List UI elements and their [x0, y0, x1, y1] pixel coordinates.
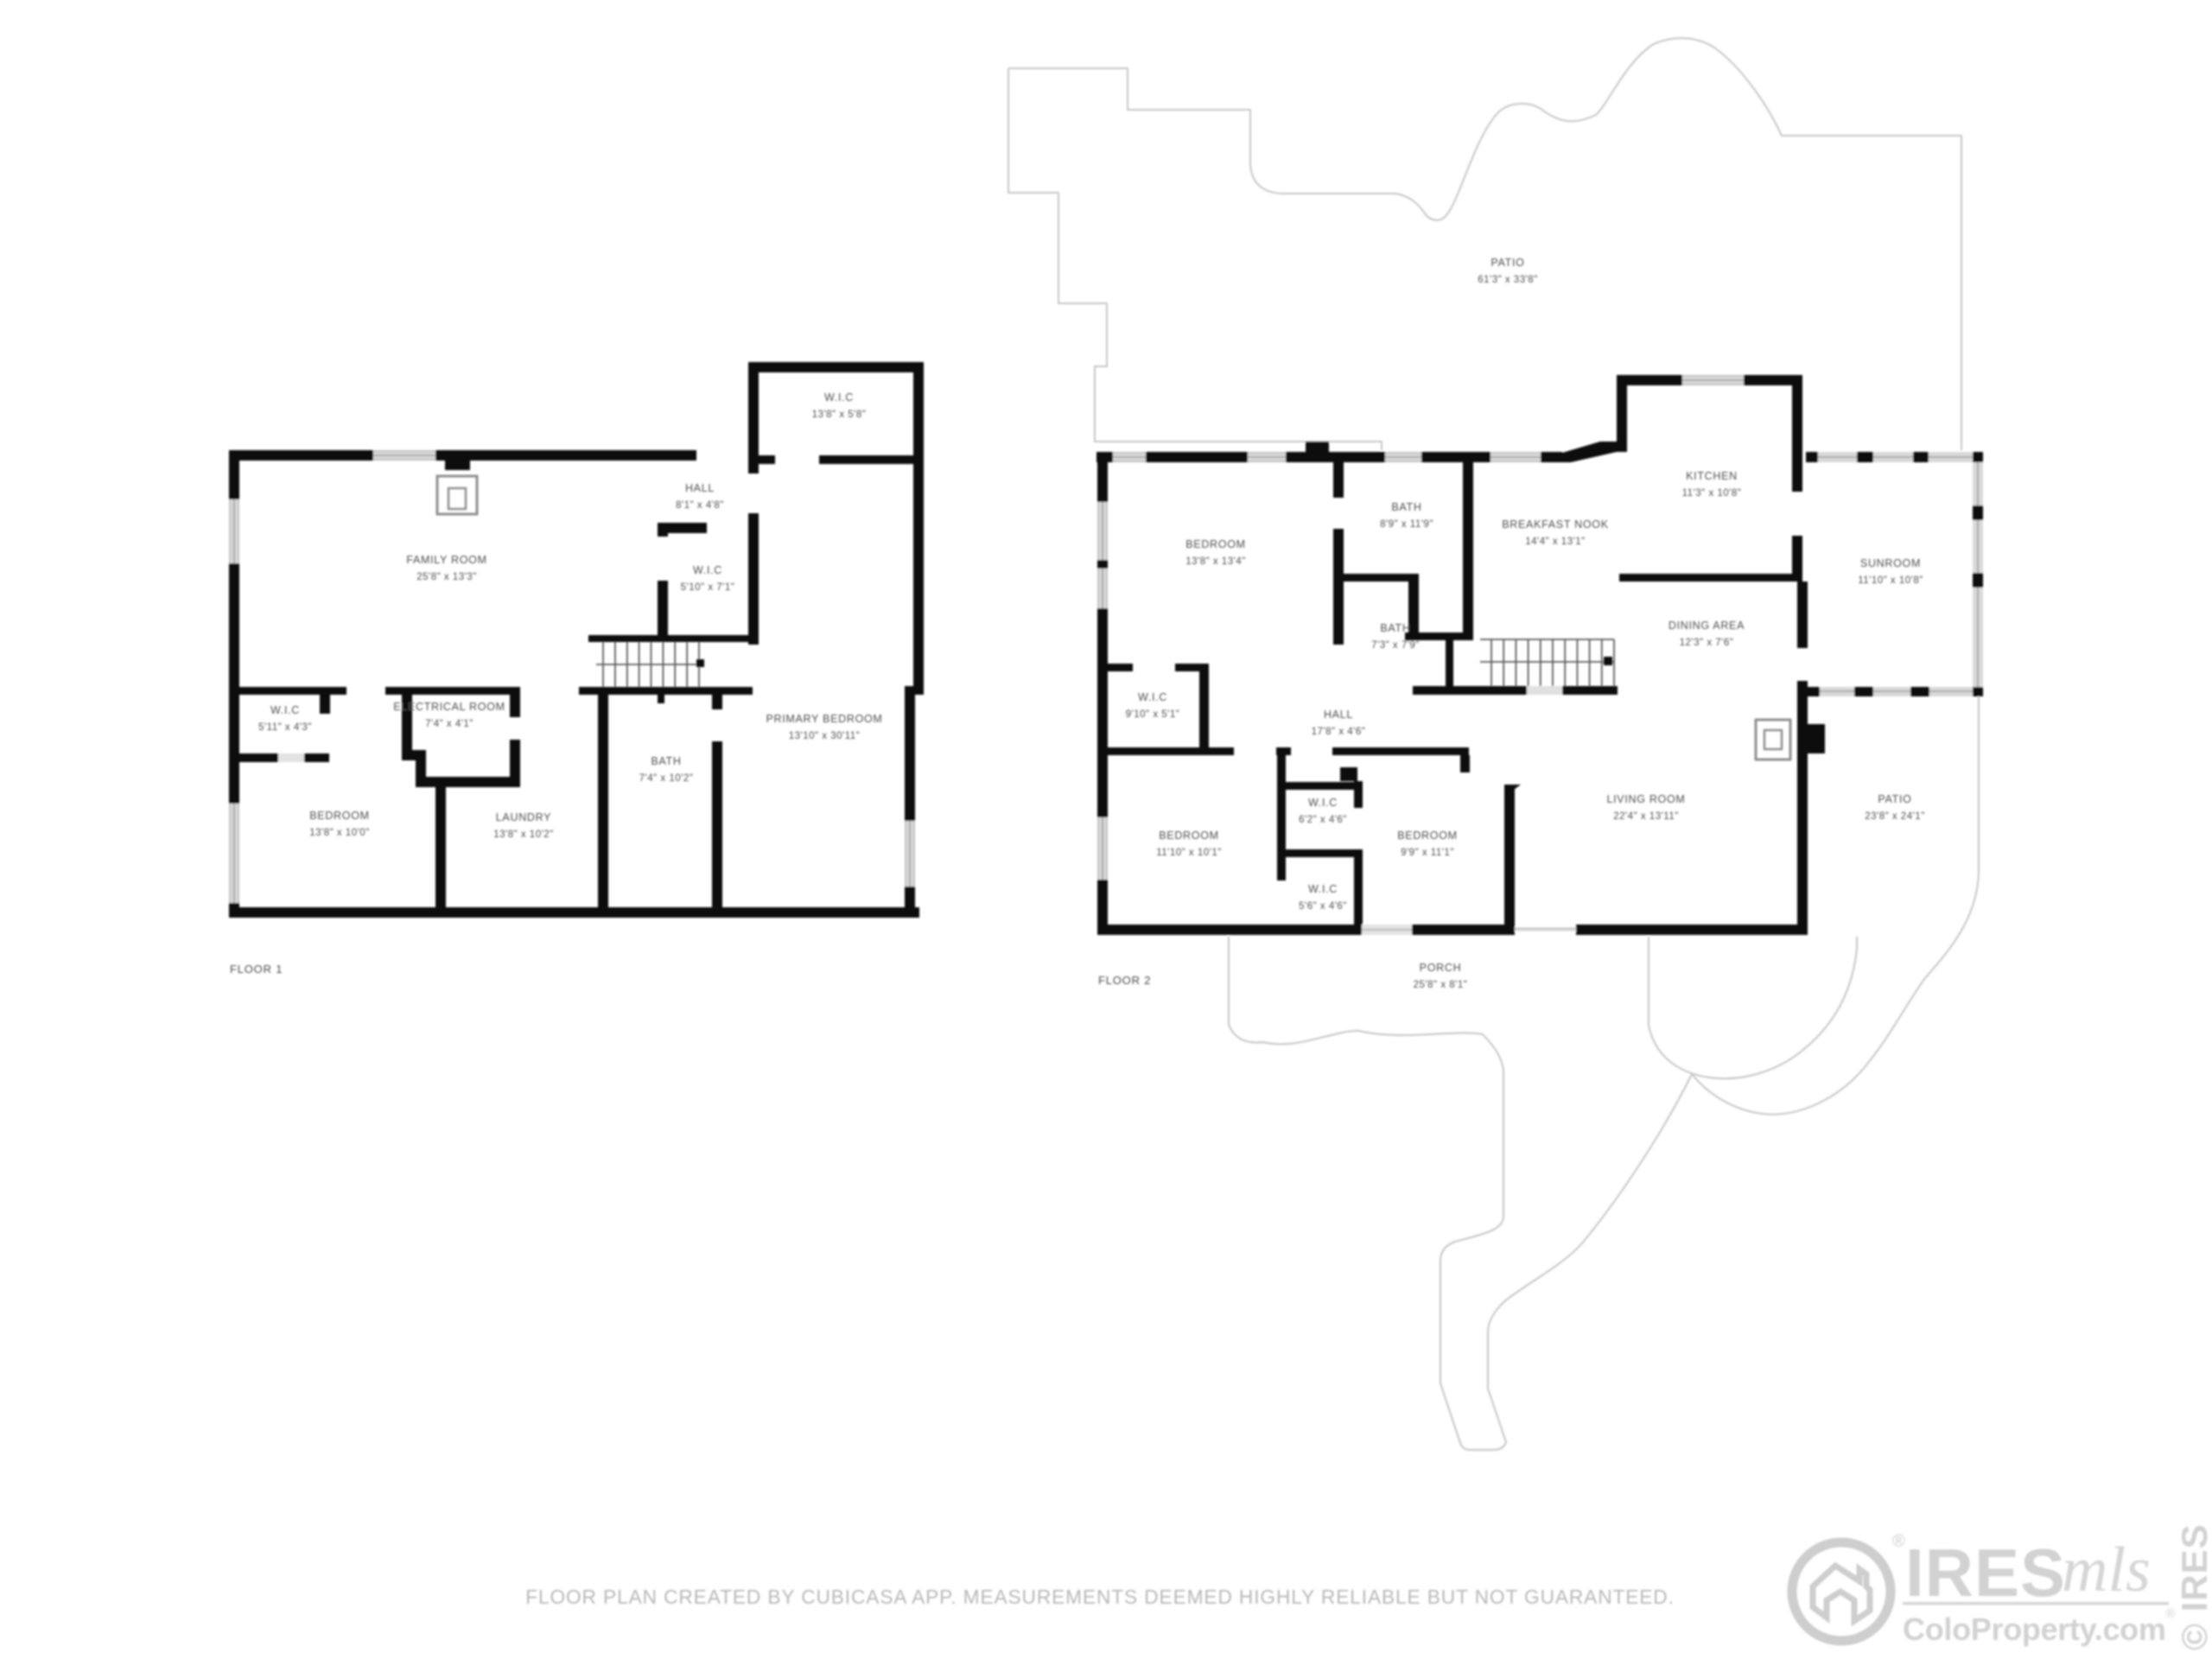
svg-text:13'8" x 10'0": 13'8" x 10'0"	[309, 828, 370, 838]
svg-text:HALL: HALL	[685, 482, 715, 494]
svg-text:25'8" x 8'1": 25'8" x 8'1"	[1414, 980, 1468, 990]
svg-text:HALL: HALL	[1324, 709, 1353, 721]
svg-text:W.I.C: W.I.C	[270, 704, 300, 716]
svg-text:FLOOR PLAN CREATED BY CUBICASA: FLOOR PLAN CREATED BY CUBICASA APP. MEAS…	[525, 1586, 1675, 1608]
svg-text:17'8" x 4'6": 17'8" x 4'6"	[1312, 727, 1366, 737]
svg-text:8'1" x 4'8": 8'1" x 4'8"	[676, 500, 724, 511]
svg-text:BATH: BATH	[1391, 501, 1421, 513]
svg-text:KITCHEN: KITCHEN	[1686, 470, 1738, 482]
svg-text:FLOOR 1: FLOOR 1	[230, 963, 283, 976]
svg-text:BEDROOM: BEDROOM	[1185, 538, 1246, 550]
svg-text:11'10" x 10'1": 11'10" x 10'1"	[1156, 848, 1222, 858]
svg-text:W.I.C: W.I.C	[693, 564, 722, 576]
svg-text:PATIO: PATIO	[1878, 793, 1911, 805]
svg-text:®: ®	[1892, 1532, 1905, 1551]
svg-text:5'6" x 4'6": 5'6" x 4'6"	[1299, 901, 1347, 912]
svg-text:SUNROOM: SUNROOM	[1860, 557, 1921, 569]
svg-text:13'10" x 30'11": 13'10" x 30'11"	[789, 731, 861, 741]
svg-text:5'10" x 7'1": 5'10" x 7'1"	[681, 582, 735, 593]
svg-text:W.I.C: W.I.C	[824, 391, 854, 404]
svg-text:7'4" x 4'1": 7'4" x 4'1"	[425, 719, 474, 729]
svg-text:PORCH: PORCH	[1420, 962, 1462, 974]
svg-text:ColoProperty.com: ColoProperty.com	[1903, 1611, 2166, 1647]
svg-text:W.I.C: W.I.C	[1308, 797, 1338, 809]
svg-text:13'8" x 10'2": 13'8" x 10'2"	[493, 829, 554, 840]
svg-text:13'8" x 5'8": 13'8" x 5'8"	[812, 410, 867, 420]
svg-text:LIVING ROOM: LIVING ROOM	[1606, 793, 1685, 805]
svg-text:5'11" x 4'3": 5'11" x 4'3"	[258, 722, 312, 733]
svg-text:mls: mls	[2062, 1535, 2151, 1605]
svg-text:14'4" x 13'1": 14'4" x 13'1"	[1525, 537, 1586, 547]
svg-text:11'3" x 10'8": 11'3" x 10'8"	[1682, 488, 1742, 499]
svg-text:BATH: BATH	[1380, 622, 1410, 634]
svg-text:LAUNDRY: LAUNDRY	[496, 811, 551, 823]
svg-text:PATIO: PATIO	[1491, 257, 1524, 269]
svg-text:DINING AREA: DINING AREA	[1669, 620, 1745, 632]
svg-text:23'8" x 24'1": 23'8" x 24'1"	[1865, 811, 1925, 822]
svg-text:BEDROOM: BEDROOM	[309, 810, 370, 822]
svg-text:22'4" x 13'11": 22'4" x 13'11"	[1613, 811, 1679, 822]
svg-text:FLOOR 2: FLOOR 2	[1098, 974, 1151, 987]
svg-text:7'3" x 7'9": 7'3" x 7'9"	[1371, 640, 1420, 651]
svg-text:W.I.C: W.I.C	[1308, 883, 1338, 895]
svg-text:IRES: IRES	[1905, 1535, 2066, 1611]
svg-text:BREAKFAST NOOK: BREAKFAST NOOK	[1502, 518, 1609, 531]
svg-text:61'3" x 33'8": 61'3" x 33'8"	[1478, 275, 1538, 285]
svg-text:12'3" x 7'6": 12'3" x 7'6"	[1680, 638, 1734, 648]
svg-text:BEDROOM: BEDROOM	[1397, 829, 1458, 842]
svg-text:FAMILY ROOM: FAMILY ROOM	[406, 554, 486, 566]
svg-text:7'4" x 10'2": 7'4" x 10'2"	[639, 773, 694, 784]
svg-text:BATH: BATH	[651, 755, 681, 767]
svg-text:ELECTRICAL ROOM: ELECTRICAL ROOM	[393, 701, 505, 713]
svg-text:13'8" x 13'4": 13'8" x 13'4"	[1185, 556, 1246, 567]
svg-text:9'10" x 5'1": 9'10" x 5'1"	[1126, 709, 1180, 720]
svg-text:6'2" x 4'6": 6'2" x 4'6"	[1299, 815, 1347, 825]
svg-text:W.I.C: W.I.C	[1138, 691, 1167, 703]
svg-text:11'10" x 10'8": 11'10" x 10'8"	[1858, 575, 1923, 586]
svg-text:BEDROOM: BEDROOM	[1159, 829, 1219, 842]
svg-text:8'9" x 11'9": 8'9" x 11'9"	[1380, 519, 1433, 530]
svg-text:© IRES: © IRES	[2174, 1523, 2212, 1650]
svg-text:PRIMARY BEDROOM: PRIMARY BEDROOM	[766, 713, 882, 725]
svg-text:25'8" x 13'3": 25'8" x 13'3"	[416, 572, 477, 582]
svg-text:9'9" x 11'1": 9'9" x 11'1"	[1401, 848, 1454, 858]
